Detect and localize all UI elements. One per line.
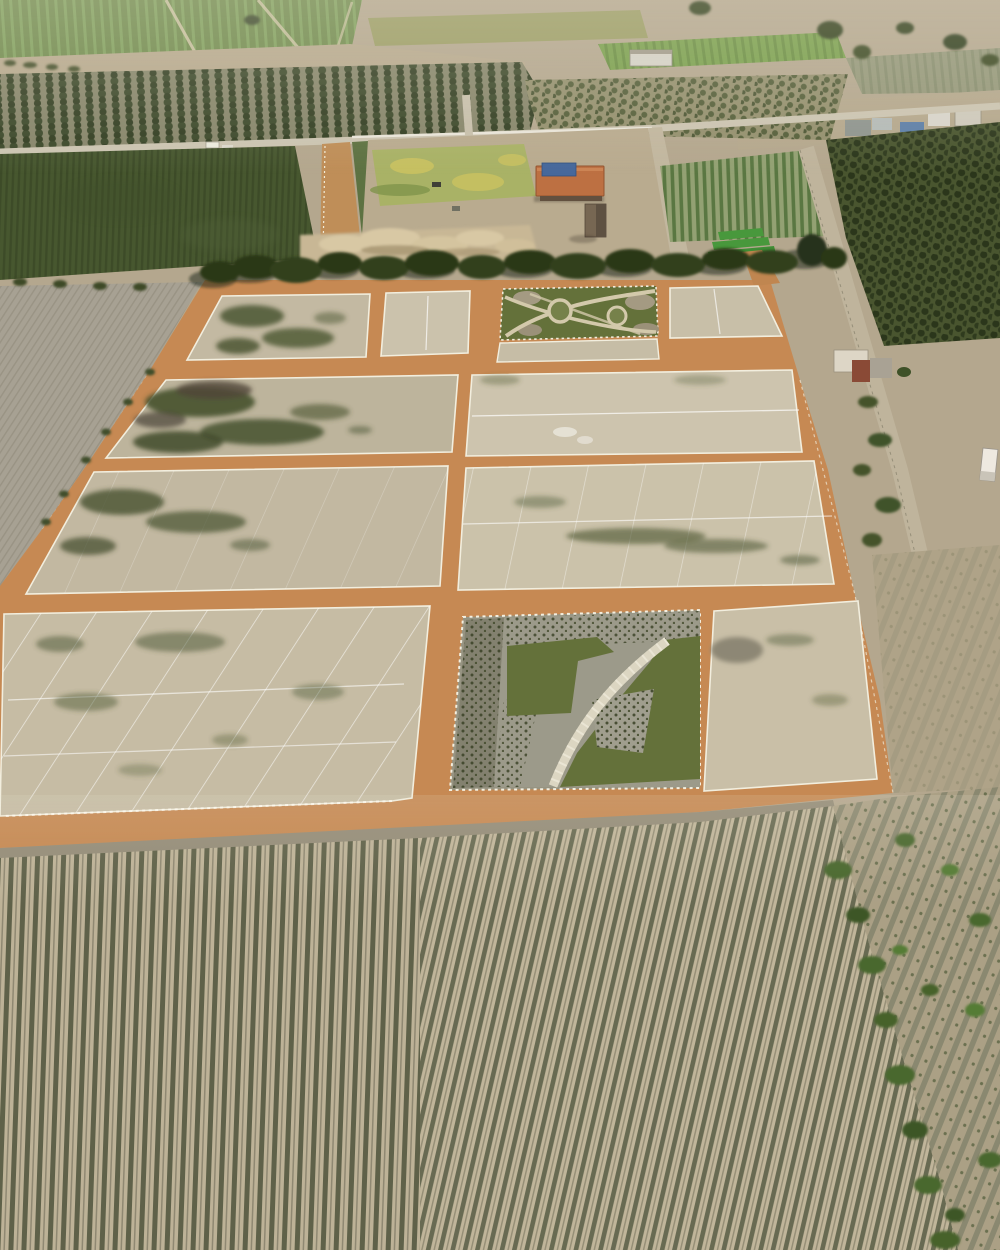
shrub [875, 497, 901, 513]
weed-patch [674, 375, 726, 385]
weed-patch [212, 734, 248, 746]
tree-canopy [746, 250, 798, 274]
shrub [874, 1012, 898, 1028]
upper-right-scrub [872, 545, 1000, 793]
weed-patch [133, 431, 223, 453]
shrub [862, 533, 882, 547]
tree-canopy [550, 253, 606, 279]
green-patch [370, 184, 430, 196]
shrub [13, 278, 27, 286]
top-park [500, 286, 659, 340]
mound [360, 228, 420, 248]
scrub-texture [872, 545, 1000, 793]
shrub [969, 913, 991, 927]
weed-patch [118, 764, 162, 776]
brick-structure [852, 360, 870, 382]
shrub [858, 396, 878, 408]
tree-canopy [458, 255, 506, 279]
shrub [59, 491, 69, 498]
white-truck [980, 448, 998, 481]
soil-patch [134, 412, 186, 428]
weed-patch [216, 338, 260, 354]
weed-patch [780, 555, 820, 565]
weed-patch [348, 426, 372, 434]
shrub [885, 1065, 915, 1085]
weed-patch [80, 489, 164, 515]
dry-grass-patch [452, 173, 504, 191]
subdivision [0, 225, 911, 848]
aerial-photo-canvas [0, 0, 1000, 1250]
soil-patch [176, 381, 252, 399]
weed-patch [135, 632, 225, 652]
portico [540, 196, 602, 201]
parked-car [432, 182, 441, 187]
shrub [853, 464, 871, 476]
tree-canopy [651, 253, 705, 277]
plot-block-i [704, 601, 877, 791]
lot-grid [458, 461, 834, 590]
field-haze [0, 795, 1000, 905]
shrub [945, 1208, 965, 1222]
weed-patch [54, 693, 118, 711]
weed-patch [146, 511, 246, 533]
tree-canopy [270, 257, 322, 283]
shrub [81, 457, 91, 464]
weed-patch [262, 328, 334, 348]
shrub [914, 1176, 942, 1194]
lot-grid [26, 466, 448, 594]
shrub [93, 282, 107, 290]
shrub [145, 369, 155, 376]
distance-haze [0, 0, 1000, 175]
tree-canopy [318, 252, 362, 274]
water-tower-shade [596, 204, 606, 237]
weed-patch [514, 496, 566, 508]
weed-patch [766, 634, 814, 646]
shrub [965, 1003, 985, 1017]
weed-patch [480, 375, 520, 385]
tree-canopy [605, 249, 655, 273]
shrub [930, 1231, 960, 1249]
tree-canopy [504, 250, 556, 274]
truck-cab [980, 471, 996, 482]
weed-patch [292, 684, 344, 700]
shrub [53, 280, 67, 288]
weed-patch [230, 539, 270, 551]
weed-patch [812, 694, 848, 706]
plot-block-b [381, 291, 470, 356]
shrub [133, 283, 147, 291]
crop-light [180, 219, 280, 251]
shrub [846, 907, 870, 923]
shrub [41, 519, 51, 526]
tree-canopy [359, 256, 409, 280]
shrub [921, 984, 939, 996]
shrub [858, 956, 886, 974]
park-roundabout [549, 300, 571, 322]
parked-car [452, 206, 460, 211]
central-park [450, 610, 700, 790]
shrub [902, 1121, 928, 1139]
park-roundabout [608, 307, 626, 325]
tree-canopy [702, 248, 750, 270]
weed-patch [314, 312, 346, 324]
shrub [897, 367, 911, 377]
tree-canopy [405, 250, 459, 276]
shrub [101, 429, 111, 436]
weed-patch [220, 305, 284, 327]
weed-patch [664, 539, 768, 553]
weed-patch [290, 404, 350, 420]
white-debris [553, 427, 577, 437]
shrub [892, 945, 908, 955]
gravel-mound [711, 637, 763, 663]
shrub [123, 399, 133, 406]
weed-patch [36, 636, 84, 652]
tree-canopy [821, 247, 847, 269]
white-debris [577, 436, 593, 444]
shrub [868, 433, 892, 447]
crop-shade [60, 180, 180, 220]
gray-structure [870, 358, 892, 378]
aerial-photo [0, 0, 1000, 1250]
weed-patch [60, 537, 116, 555]
tower-shadow [569, 235, 597, 243]
plot-strip [497, 339, 659, 362]
